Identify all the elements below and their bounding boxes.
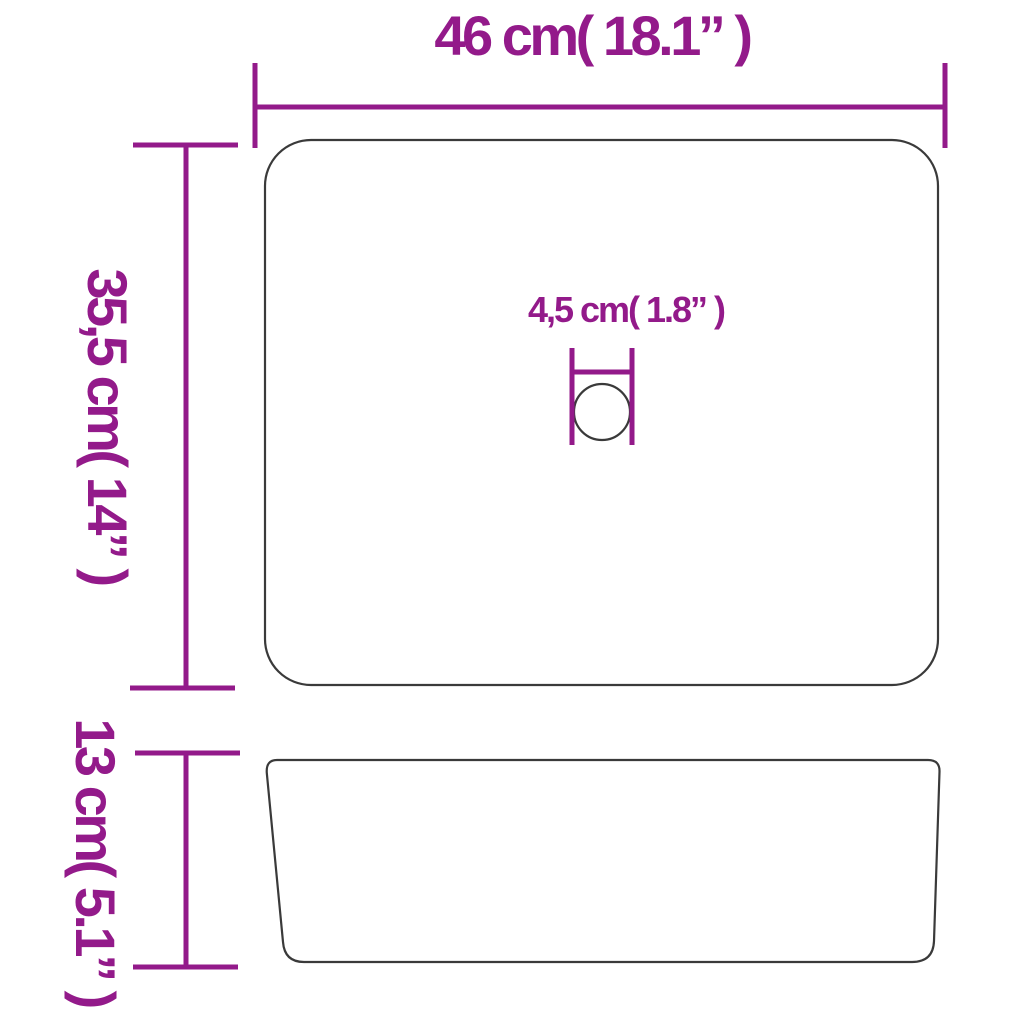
height-dimension: 13 cm( 5.1” ) xyxy=(64,718,240,1006)
sink-top-view xyxy=(265,140,938,685)
width-dimension-label: 46 cm( 18.1” ) xyxy=(434,4,750,67)
height-dimension-label: 13 cm( 5.1” ) xyxy=(64,718,127,1006)
width-dimension: 46 cm( 18.1” ) xyxy=(255,4,945,148)
drain-dimension: 4,5 cm( 1.8” ) xyxy=(528,289,725,445)
depth-dimension-label: 35,5 cm( 14” ) xyxy=(76,268,139,584)
dimension-diagram-canvas: 46 cm( 18.1” ) 35,5 cm( 14” ) 4,5 cm( 1.… xyxy=(0,0,1024,1024)
sink-side-view xyxy=(267,760,940,962)
sink-top-view-outline xyxy=(265,140,938,685)
drain-dimension-label: 4,5 cm( 1.8” ) xyxy=(528,289,725,330)
product-dimension-diagram: 46 cm( 18.1” ) 35,5 cm( 14” ) 4,5 cm( 1.… xyxy=(0,0,1024,1024)
sink-side-view-outline xyxy=(267,760,940,962)
depth-dimension: 35,5 cm( 14” ) xyxy=(76,145,238,688)
drain-hole-outline xyxy=(574,384,630,440)
